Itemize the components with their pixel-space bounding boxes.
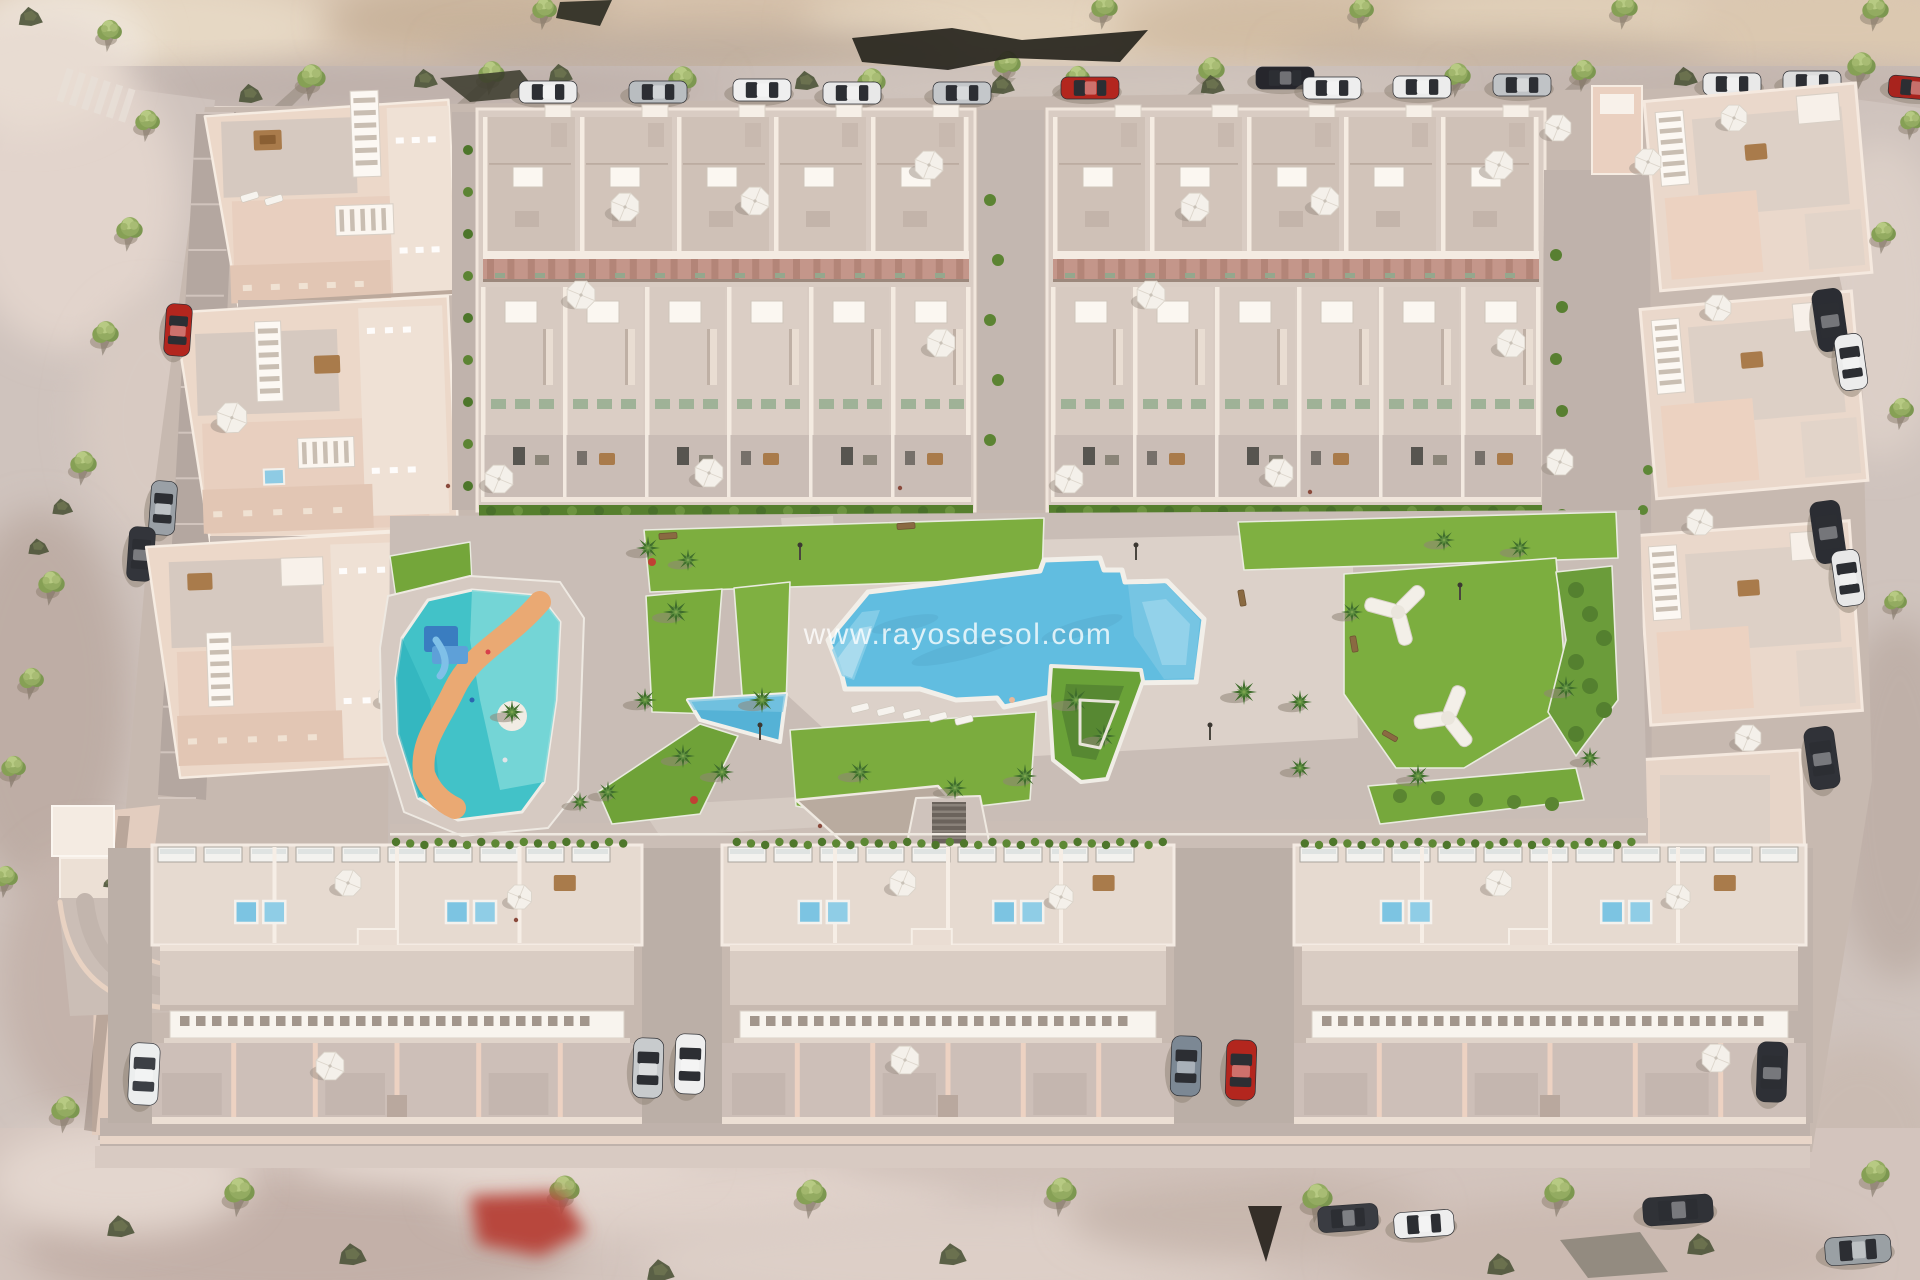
svg-text:www.rayosdesol.com: www.rayosdesol.com — [803, 618, 1113, 651]
